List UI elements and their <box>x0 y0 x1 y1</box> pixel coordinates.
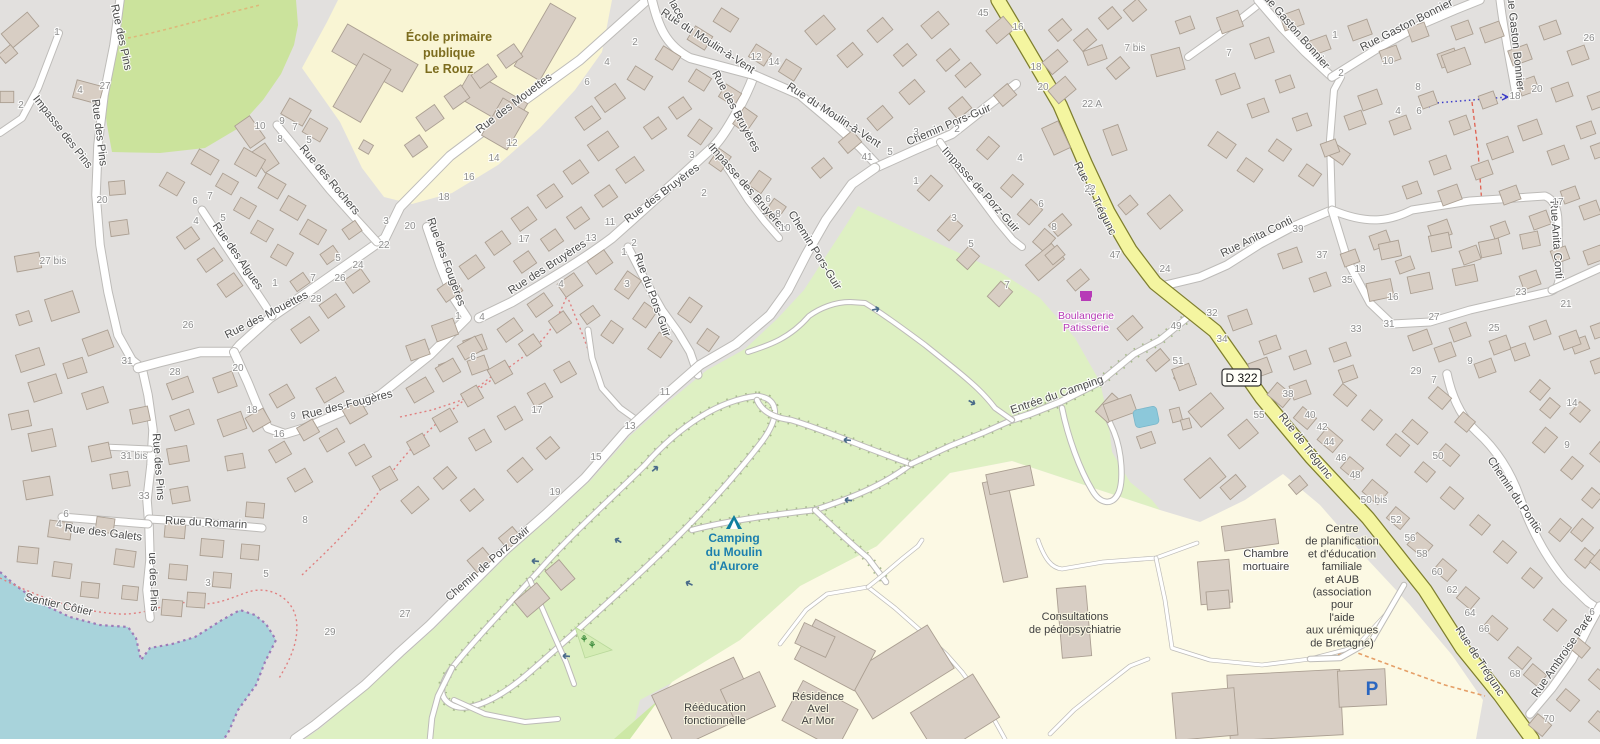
svg-text:21: 21 <box>1560 299 1572 310</box>
svg-text:5: 5 <box>220 213 226 224</box>
svg-text:64: 64 <box>1464 608 1476 619</box>
svg-text:22 A: 22 A <box>1082 99 1102 110</box>
svg-text:26: 26 <box>334 273 346 284</box>
svg-text:37: 37 <box>1316 250 1328 261</box>
svg-text:(association: (association <box>1313 587 1372 599</box>
svg-text:50 bis: 50 bis <box>1361 495 1388 506</box>
svg-text:14: 14 <box>1566 398 1578 409</box>
svg-text:2: 2 <box>18 100 24 111</box>
svg-text:33: 33 <box>138 491 150 502</box>
svg-text:27: 27 <box>1428 312 1440 323</box>
svg-text:27: 27 <box>399 609 411 620</box>
svg-text:4: 4 <box>558 279 564 290</box>
svg-text:et d'éducation: et d'éducation <box>1308 548 1376 560</box>
svg-text:8: 8 <box>277 134 283 145</box>
svg-text:28: 28 <box>169 367 181 378</box>
svg-text:6: 6 <box>765 194 771 205</box>
svg-text:46: 46 <box>1335 453 1347 464</box>
svg-text:17: 17 <box>531 405 543 416</box>
svg-text:publique: publique <box>423 46 475 60</box>
svg-text:4: 4 <box>193 216 199 227</box>
svg-text:58: 58 <box>1416 549 1428 560</box>
svg-text:14: 14 <box>488 153 500 164</box>
svg-text:31 bis: 31 bis <box>121 451 148 462</box>
svg-text:Camping: Camping <box>708 531 759 545</box>
svg-text:18: 18 <box>1030 62 1042 73</box>
svg-text:1: 1 <box>1332 30 1338 41</box>
svg-text:familiale: familiale <box>1322 561 1362 573</box>
svg-text:41: 41 <box>861 152 873 163</box>
svg-text:12: 12 <box>750 52 762 63</box>
svg-text:6: 6 <box>63 509 69 520</box>
svg-text:4: 4 <box>1395 106 1401 117</box>
svg-text:7 bis: 7 bis <box>1124 43 1145 54</box>
svg-text:1: 1 <box>54 27 60 38</box>
svg-text:62: 62 <box>1446 585 1458 596</box>
svg-text:22: 22 <box>1084 184 1096 195</box>
svg-text:15: 15 <box>590 452 602 463</box>
svg-text:Patisserie: Patisserie <box>1063 322 1109 334</box>
svg-text:20: 20 <box>232 363 244 374</box>
svg-text:3: 3 <box>689 150 695 161</box>
svg-text:16: 16 <box>273 429 285 440</box>
svg-text:60: 60 <box>1431 567 1443 578</box>
svg-text:ue des Pins: ue des Pins <box>146 552 160 612</box>
svg-text:8: 8 <box>775 209 781 220</box>
svg-text:et AUB: et AUB <box>1325 574 1359 586</box>
svg-text:40: 40 <box>1304 410 1316 421</box>
svg-text:48: 48 <box>1349 470 1361 481</box>
svg-text:20: 20 <box>96 195 108 206</box>
svg-text:pour: pour <box>1331 599 1353 611</box>
svg-text:9: 9 <box>1564 440 1570 451</box>
svg-text:47: 47 <box>1109 250 1121 261</box>
svg-text:4: 4 <box>56 519 62 530</box>
svg-text:5: 5 <box>335 253 341 264</box>
svg-text:25: 25 <box>1488 323 1500 334</box>
svg-text:12: 12 <box>506 138 518 149</box>
svg-text:31: 31 <box>121 356 133 367</box>
svg-text:1: 1 <box>272 278 278 289</box>
svg-text:55: 55 <box>1253 410 1265 421</box>
svg-text:2: 2 <box>701 188 707 199</box>
svg-text:35: 35 <box>1341 275 1353 286</box>
svg-text:9: 9 <box>279 116 285 127</box>
svg-text:6: 6 <box>1589 607 1595 618</box>
svg-text:9: 9 <box>1467 356 1473 367</box>
svg-text:9: 9 <box>290 411 296 422</box>
svg-text:18: 18 <box>1354 264 1366 275</box>
svg-text:de planification: de planification <box>1305 536 1378 548</box>
svg-text:Résidence: Résidence <box>792 691 844 703</box>
svg-text:10: 10 <box>254 121 266 132</box>
svg-text:16: 16 <box>463 172 475 183</box>
svg-text:7: 7 <box>207 191 213 202</box>
svg-text:6: 6 <box>1416 106 1422 117</box>
svg-text:7: 7 <box>310 273 316 284</box>
svg-text:6: 6 <box>1038 199 1044 210</box>
svg-text:66: 66 <box>1478 624 1490 635</box>
svg-text:Le Rouz: Le Rouz <box>425 62 474 76</box>
svg-text:24: 24 <box>1159 264 1171 275</box>
svg-text:mortuaire: mortuaire <box>1243 561 1289 573</box>
svg-text:D 322: D 322 <box>1225 371 1257 385</box>
svg-text:5: 5 <box>306 135 312 146</box>
svg-text:68: 68 <box>1509 669 1521 680</box>
svg-text:18: 18 <box>438 192 450 203</box>
svg-text:51: 51 <box>1172 356 1184 367</box>
svg-text:3: 3 <box>624 279 630 290</box>
svg-text:⚘: ⚘ <box>588 640 596 650</box>
svg-text:17: 17 <box>518 234 530 245</box>
svg-text:34: 34 <box>1216 334 1228 345</box>
svg-text:1: 1 <box>621 247 627 258</box>
svg-text:19: 19 <box>549 487 561 498</box>
svg-text:Consultations: Consultations <box>1042 611 1109 623</box>
svg-text:18: 18 <box>1509 91 1521 102</box>
svg-text:5: 5 <box>968 239 974 250</box>
svg-text:5: 5 <box>887 147 893 158</box>
svg-text:6: 6 <box>192 196 198 207</box>
svg-text:Chambre: Chambre <box>1243 548 1288 560</box>
svg-text:11: 11 <box>660 387 671 398</box>
svg-text:16: 16 <box>1387 292 1399 303</box>
svg-text:27 bis: 27 bis <box>40 256 67 267</box>
svg-text:38: 38 <box>1282 389 1294 400</box>
svg-text:8: 8 <box>302 515 308 526</box>
svg-text:50: 50 <box>1432 451 1444 462</box>
svg-text:44: 44 <box>1323 437 1335 448</box>
svg-text:26: 26 <box>1583 33 1595 44</box>
svg-text:2: 2 <box>1338 68 1344 79</box>
svg-text:22: 22 <box>378 240 390 251</box>
svg-text:8: 8 <box>1415 82 1421 93</box>
svg-text:1: 1 <box>913 176 919 187</box>
svg-text:26: 26 <box>182 320 194 331</box>
svg-text:24: 24 <box>352 260 364 271</box>
svg-text:16: 16 <box>1012 22 1024 33</box>
svg-text:3: 3 <box>913 127 919 138</box>
svg-text:⚘: ⚘ <box>580 634 588 644</box>
svg-text:Rééducation: Rééducation <box>684 702 746 714</box>
svg-text:1: 1 <box>455 311 461 322</box>
svg-text:17: 17 <box>1552 197 1564 208</box>
svg-text:8: 8 <box>1051 222 1057 233</box>
svg-text:Avel: Avel <box>807 703 828 715</box>
svg-text:d'Aurore: d'Aurore <box>709 559 759 573</box>
svg-text:de Bretagne): de Bretagne) <box>1310 637 1374 649</box>
svg-text:École primaire: École primaire <box>406 29 492 44</box>
svg-text:49: 49 <box>1170 321 1182 332</box>
svg-text:28: 28 <box>310 294 322 305</box>
svg-text:18: 18 <box>246 405 258 416</box>
svg-text:6: 6 <box>584 77 590 88</box>
svg-text:7: 7 <box>1431 375 1437 386</box>
svg-text:39: 39 <box>1292 224 1304 235</box>
svg-text:11: 11 <box>605 217 616 228</box>
svg-text:23: 23 <box>1515 287 1527 298</box>
svg-text:P: P <box>1366 679 1379 700</box>
svg-text:32: 32 <box>1206 308 1218 319</box>
svg-text:10: 10 <box>1382 56 1394 67</box>
svg-text:52: 52 <box>1390 515 1402 526</box>
svg-text:27: 27 <box>99 81 111 92</box>
svg-text:7: 7 <box>1004 280 1010 291</box>
svg-text:20: 20 <box>1531 84 1543 95</box>
svg-text:33: 33 <box>1350 324 1362 335</box>
svg-text:10: 10 <box>779 223 791 234</box>
svg-text:7: 7 <box>292 122 298 133</box>
svg-text:45: 45 <box>977 8 989 19</box>
svg-text:2: 2 <box>631 238 637 249</box>
svg-text:70: 70 <box>1543 714 1555 725</box>
svg-text:14: 14 <box>768 57 780 68</box>
svg-text:31: 31 <box>1383 319 1395 330</box>
svg-text:6: 6 <box>470 352 476 363</box>
svg-text:56: 56 <box>1404 533 1416 544</box>
svg-text:du Moulin: du Moulin <box>706 545 763 559</box>
svg-text:2: 2 <box>632 37 638 48</box>
svg-text:4: 4 <box>479 312 485 323</box>
svg-text:Boulangerie: Boulangerie <box>1058 310 1114 322</box>
svg-text:20: 20 <box>1037 82 1049 93</box>
svg-text:3: 3 <box>205 578 211 589</box>
svg-text:de pédopsychiatrie: de pédopsychiatrie <box>1029 624 1121 636</box>
svg-text:29: 29 <box>324 627 336 638</box>
svg-text:3: 3 <box>383 216 389 227</box>
svg-text:4: 4 <box>1017 153 1023 164</box>
svg-text:Ar Mor: Ar Mor <box>802 715 835 727</box>
svg-text:3: 3 <box>951 213 957 224</box>
svg-text:7: 7 <box>1226 48 1232 59</box>
svg-text:13: 13 <box>585 233 597 244</box>
svg-text:Centre: Centre <box>1325 523 1358 535</box>
svg-text:13: 13 <box>624 421 636 432</box>
svg-text:4: 4 <box>77 85 83 96</box>
svg-text:4: 4 <box>604 57 610 68</box>
svg-text:2: 2 <box>954 124 960 135</box>
svg-text:42: 42 <box>1316 422 1328 433</box>
svg-text:fonctionnelle: fonctionnelle <box>684 715 746 727</box>
svg-text:l'aide: l'aide <box>1329 612 1354 624</box>
svg-text:20: 20 <box>404 221 416 232</box>
svg-text:aux urémiques: aux urémiques <box>1306 625 1379 637</box>
svg-text:29: 29 <box>1410 366 1422 377</box>
svg-text:5: 5 <box>263 569 269 580</box>
